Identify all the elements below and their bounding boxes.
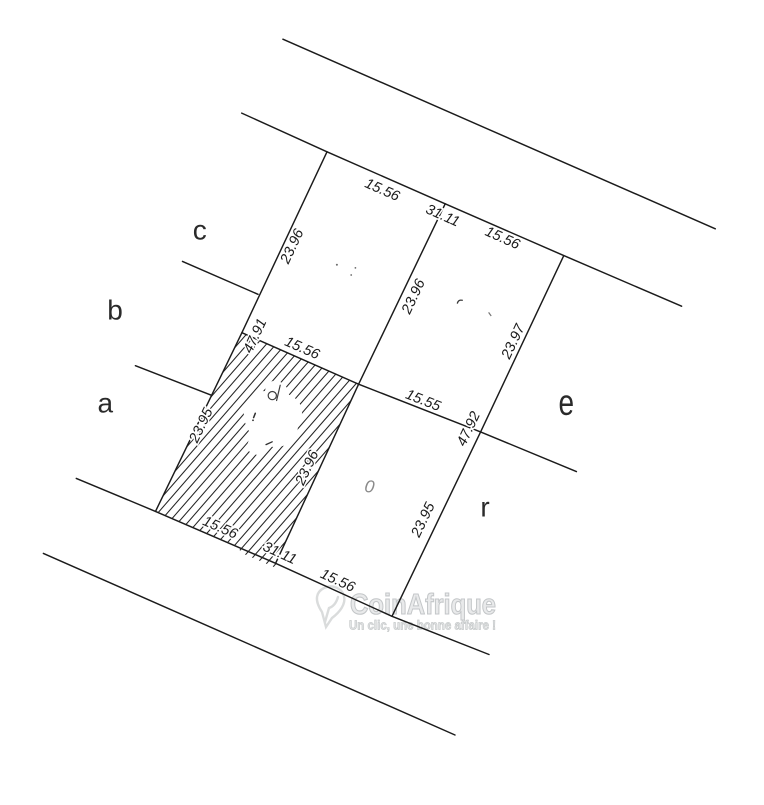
svg-text:b: b bbox=[107, 295, 123, 326]
svg-text:r: r bbox=[480, 491, 489, 522]
svg-text:e: e bbox=[559, 381, 575, 423]
svg-text:Un clic, une bonne affaire !: Un clic, une bonne affaire ! bbox=[349, 619, 496, 633]
svg-text:c: c bbox=[193, 215, 207, 246]
svg-text:CoinAfrique: CoinAfrique bbox=[350, 589, 496, 621]
svg-text:a: a bbox=[98, 388, 114, 419]
